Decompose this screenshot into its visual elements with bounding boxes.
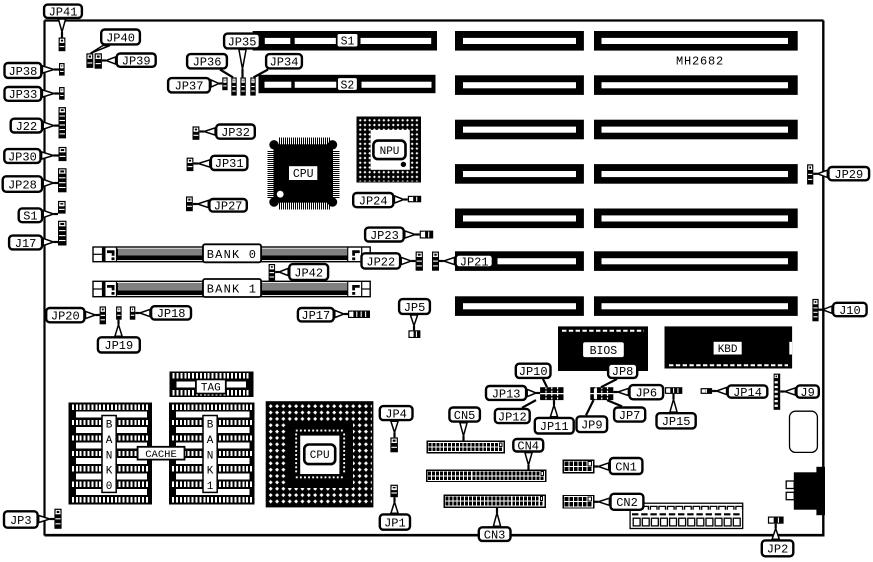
svg-text:CN5: CN5 [454, 409, 476, 423]
svg-text:N: N [106, 450, 113, 462]
svg-text:BANK 1: BANK 1 [207, 283, 257, 297]
svg-text:J22: J22 [16, 120, 38, 134]
svg-text:JP29: JP29 [834, 168, 863, 182]
svg-text:JP14: JP14 [733, 386, 762, 400]
svg-text:CN1: CN1 [615, 460, 637, 474]
svg-text:JP7: JP7 [619, 409, 641, 423]
svg-text:BANK 0: BANK 0 [207, 248, 257, 262]
svg-text:JP15: JP15 [662, 415, 691, 429]
svg-text:JP38: JP38 [8, 65, 37, 79]
svg-text:J10: J10 [839, 304, 861, 318]
svg-text:N: N [207, 450, 214, 462]
svg-text:JP36: JP36 [193, 56, 222, 70]
svg-text:JP3: JP3 [10, 514, 32, 528]
svg-text:JP40: JP40 [106, 31, 135, 45]
svg-text:CPU: CPU [310, 450, 330, 462]
svg-text:JP17: JP17 [301, 309, 330, 323]
svg-text:0: 0 [106, 481, 113, 493]
svg-text:B: B [106, 420, 113, 432]
svg-text:JP39: JP39 [122, 55, 151, 69]
svg-text:JP18: JP18 [157, 307, 186, 321]
svg-text:K: K [106, 466, 113, 478]
svg-text:1: 1 [207, 481, 214, 493]
svg-text:JP19: JP19 [104, 339, 133, 353]
svg-text:CN2: CN2 [616, 496, 638, 510]
svg-text:BIOS: BIOS [590, 345, 618, 358]
svg-text:JP13: JP13 [492, 387, 521, 401]
svg-text:JP35: JP35 [228, 35, 257, 49]
svg-text:TAG: TAG [201, 382, 221, 394]
svg-text:JP12: JP12 [498, 410, 527, 424]
svg-text:J9: J9 [800, 386, 814, 400]
svg-text:CPU: CPU [293, 168, 314, 181]
svg-text:MH2682: MH2682 [676, 55, 724, 69]
svg-text:S1: S1 [23, 210, 37, 224]
svg-text:J17: J17 [15, 237, 37, 251]
svg-text:NPU: NPU [380, 146, 400, 158]
svg-text:JP42: JP42 [294, 266, 323, 280]
svg-text:S1: S1 [341, 36, 355, 49]
svg-text:JP37: JP37 [175, 80, 204, 94]
svg-text:JP28: JP28 [8, 178, 37, 192]
svg-text:JP4: JP4 [385, 407, 407, 421]
svg-text:JP33: JP33 [8, 88, 37, 102]
svg-text:S2: S2 [340, 79, 354, 92]
svg-text:JP8: JP8 [612, 365, 634, 379]
svg-text:CACHE: CACHE [145, 449, 177, 461]
svg-text:CN4: CN4 [517, 440, 539, 454]
svg-text:A: A [207, 435, 214, 447]
svg-text:KBD: KBD [718, 344, 738, 356]
svg-text:JP30: JP30 [8, 150, 37, 164]
svg-text:CN3: CN3 [484, 528, 506, 542]
svg-text:JP20: JP20 [51, 310, 80, 324]
svg-text:JP31: JP31 [215, 157, 244, 171]
svg-text:JP5: JP5 [404, 301, 426, 315]
svg-text:JP23: JP23 [370, 229, 399, 243]
svg-text:JP21: JP21 [460, 255, 489, 269]
svg-text:JP2: JP2 [767, 543, 789, 557]
svg-text:JP24: JP24 [359, 194, 388, 208]
svg-text:K: K [207, 466, 214, 478]
svg-text:A: A [106, 435, 113, 447]
svg-text:JP27: JP27 [214, 200, 243, 214]
svg-text:JP9: JP9 [581, 419, 603, 433]
svg-text:JP11: JP11 [540, 420, 569, 434]
svg-text:JP22: JP22 [366, 255, 395, 269]
svg-text:JP34: JP34 [270, 56, 299, 70]
svg-text:JP10: JP10 [519, 365, 548, 379]
svg-text:B: B [207, 420, 214, 432]
svg-text:JP41: JP41 [49, 6, 78, 20]
svg-text:JP6: JP6 [635, 387, 657, 401]
svg-text:JP1: JP1 [384, 516, 406, 530]
svg-text:JP32: JP32 [221, 126, 250, 140]
